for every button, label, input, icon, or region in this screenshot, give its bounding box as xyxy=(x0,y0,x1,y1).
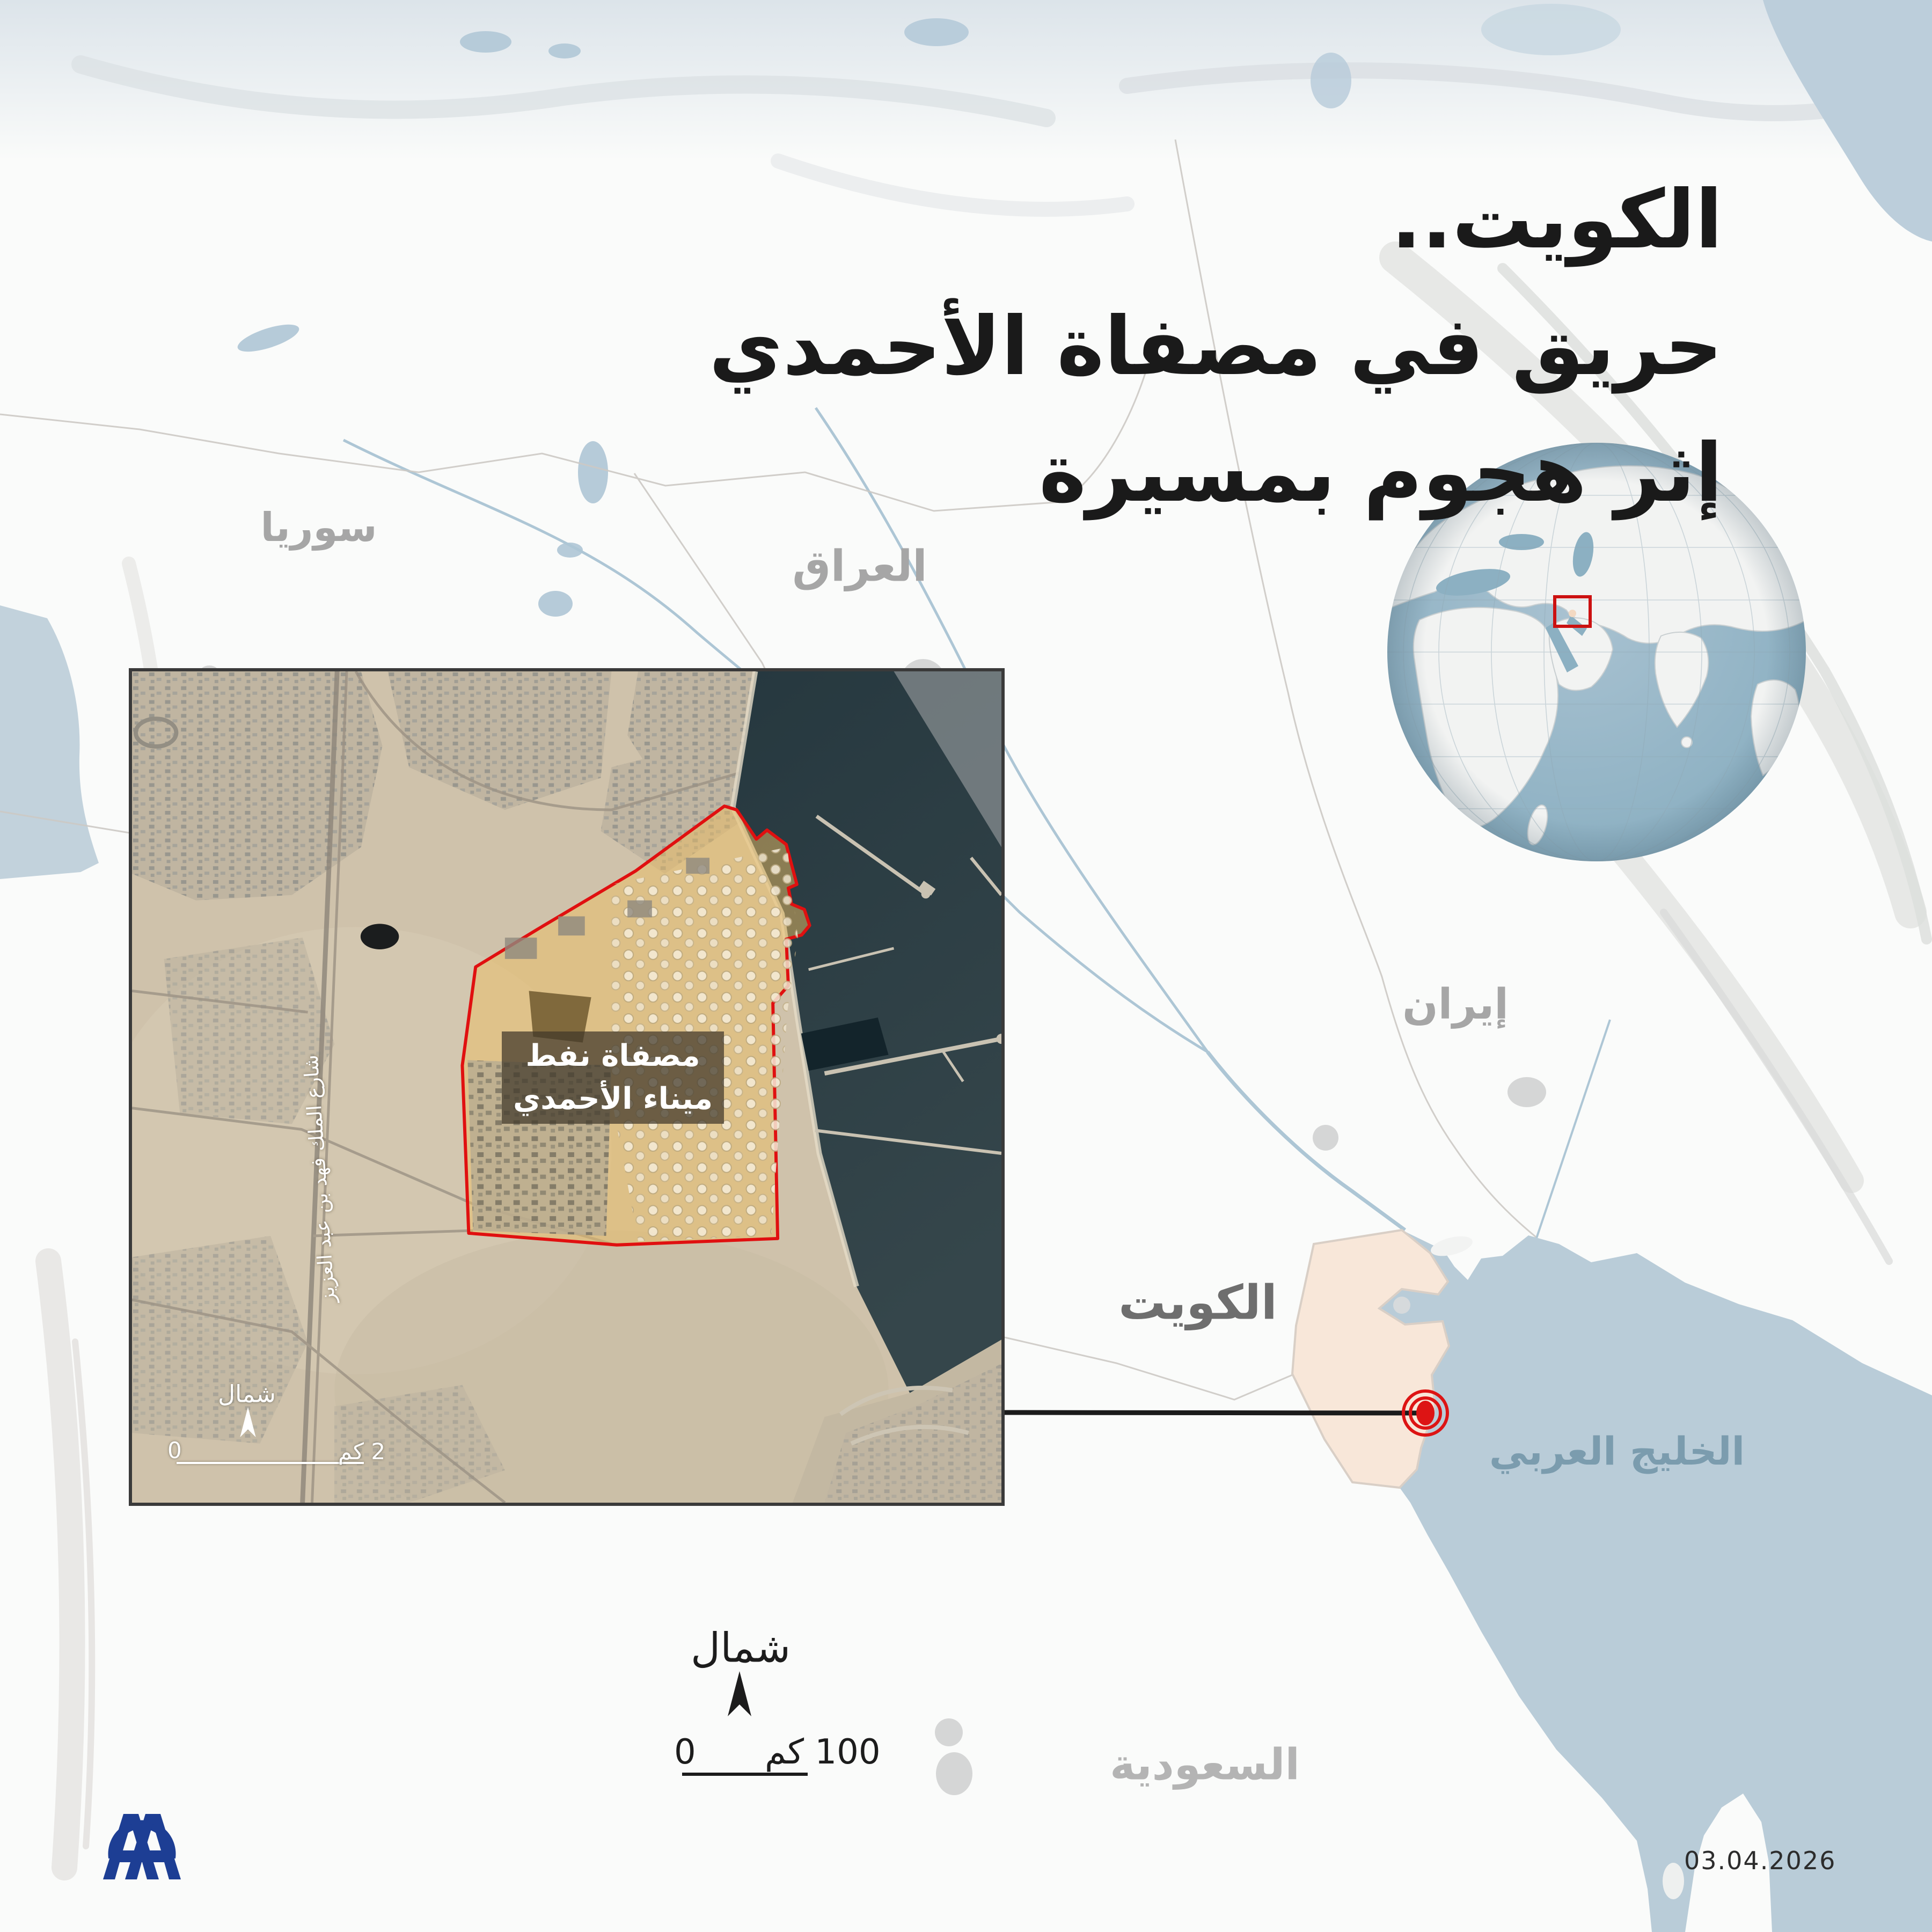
publication-date: 03.04.2026 xyxy=(1684,1846,1836,1875)
label-kuwait: الكويت xyxy=(1118,1275,1277,1330)
bahrain-island xyxy=(1663,1863,1684,1899)
inset-north-arrow-icon xyxy=(239,1407,257,1437)
lake-van xyxy=(904,18,969,46)
main-north-arrow-icon xyxy=(728,1671,751,1716)
inset-small-pond xyxy=(361,924,399,949)
label-syria: سوريا xyxy=(260,504,377,551)
headline-line3: إثر هجوم بمسيرة xyxy=(709,410,1723,537)
inset-north-label: شمال xyxy=(218,1381,276,1408)
event-location-marker xyxy=(1403,1391,1447,1435)
headline: الكويت.. حريق في مصفاة الأحمدي إثر هجوم … xyxy=(709,157,1723,537)
label-iran: إيران xyxy=(1402,980,1509,1029)
inset-scale-end: 2 كم xyxy=(338,1438,385,1465)
main-scale-end: 100 كم xyxy=(765,1732,881,1772)
kuwait-city-urban xyxy=(1393,1297,1410,1314)
anadolu-agency-logo xyxy=(103,1799,181,1880)
headline-line1: الكويت.. xyxy=(709,157,1723,283)
infographic-canvas: مصفاة نفط ميناء الأحمدي شارع الملك فهد ب… xyxy=(0,0,1932,1932)
main-north-label: شمال xyxy=(691,1624,791,1672)
refinery-label-line1: مصفاة نفط xyxy=(502,1035,724,1078)
black-sea-fragment xyxy=(1481,4,1621,55)
northern-sea-band xyxy=(0,0,1932,161)
label-arabian-gulf: الخليج العربي xyxy=(1489,1429,1745,1474)
label-iraq: العراق xyxy=(792,541,927,591)
label-saudi-arabia: السعودية xyxy=(1110,1740,1300,1790)
refinery-label: مصفاة نفط ميناء الأحمدي xyxy=(502,1031,724,1124)
leader-line xyxy=(1005,1413,1425,1413)
refinery-label-line2: ميناء الأحمدي xyxy=(502,1078,724,1121)
main-scale-start: 0 xyxy=(674,1732,696,1772)
main-scale-bar xyxy=(682,1773,808,1776)
headline-line2: حريق في مصفاة الأحمدي xyxy=(709,283,1723,410)
inset-scale-bar xyxy=(177,1462,364,1464)
inset-scale-start: 0 xyxy=(167,1437,182,1463)
